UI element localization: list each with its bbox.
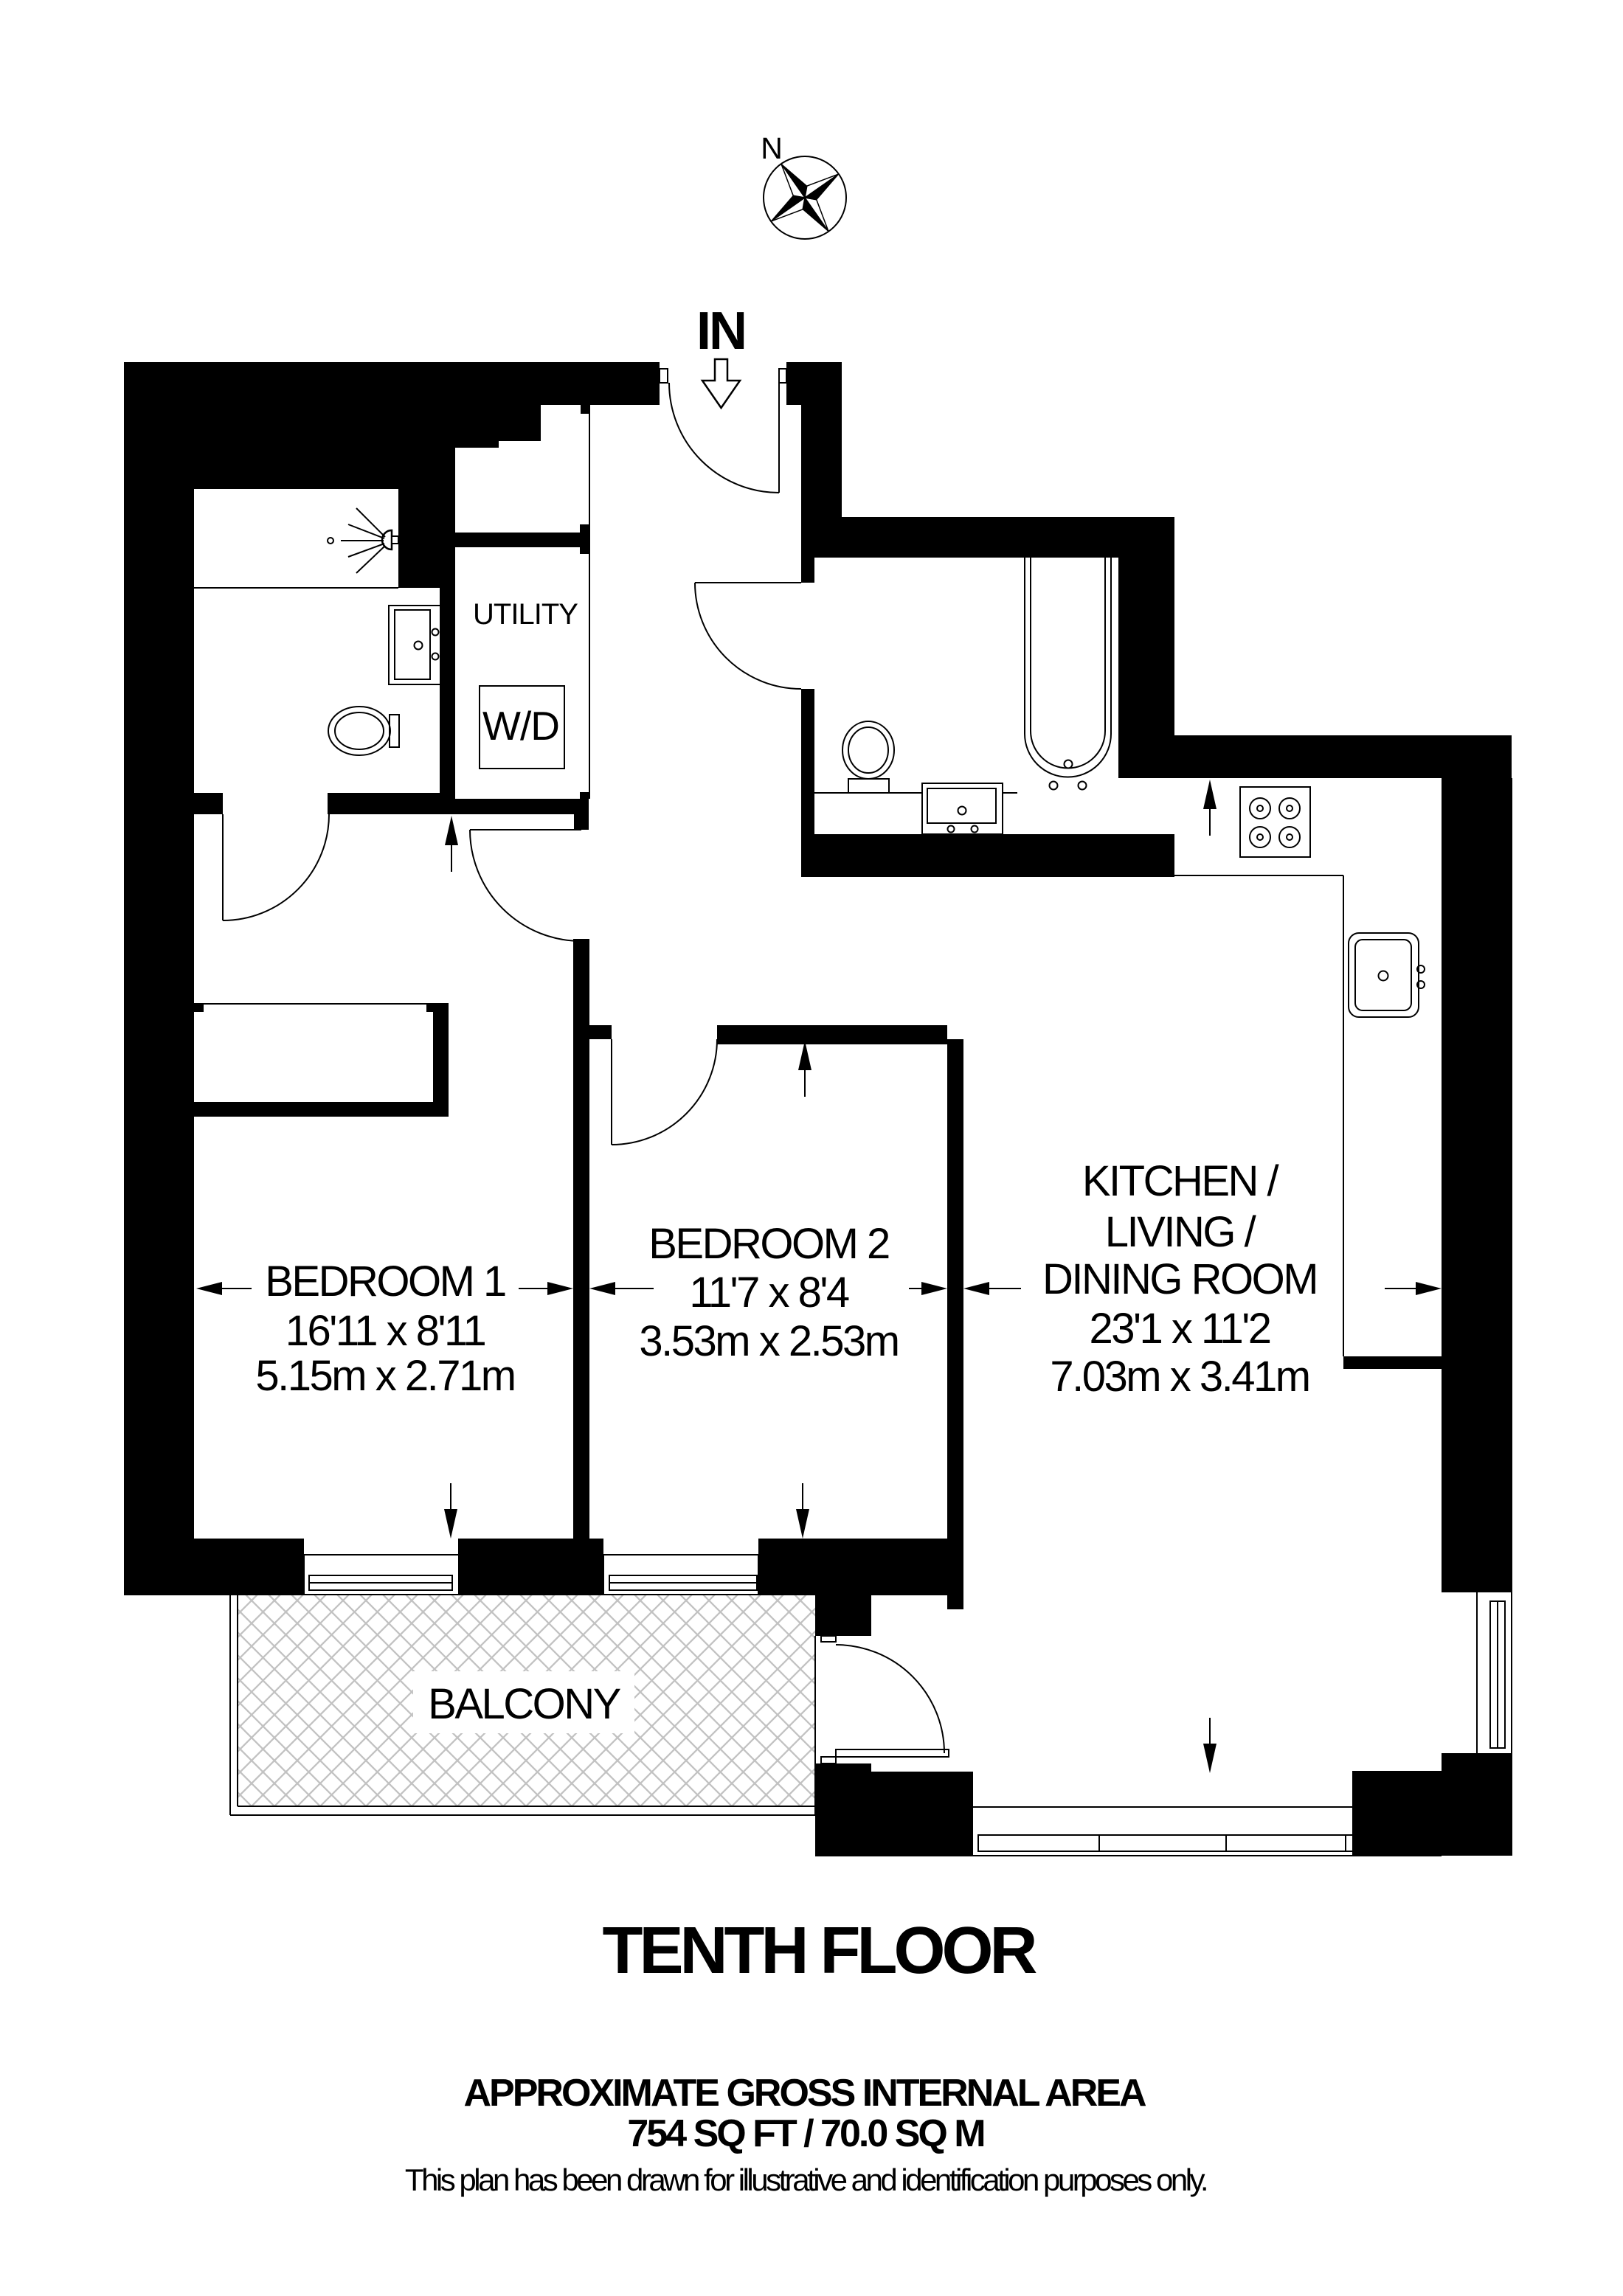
svg-text:KITCHEN /: KITCHEN / (1082, 1157, 1280, 1205)
svg-text:APPROXIMATE GROSS INTERNAL ARE: APPROXIMATE GROSS INTERNAL AREA (463, 2072, 1146, 2115)
svg-text:TENTH FLOOR: TENTH FLOOR (603, 1914, 1037, 1988)
svg-text:LIVING /: LIVING / (1105, 1208, 1257, 1256)
svg-text:BEDROOM 1: BEDROOM 1 (265, 1258, 505, 1305)
svg-text:754 SQ FT / 70.0 SQ M: 754 SQ FT / 70.0 SQ M (627, 2112, 983, 2155)
svg-text:7.03m x 3.41m: 7.03m x 3.41m (1050, 1353, 1309, 1401)
svg-text:11'7 x 8'4: 11'7 x 8'4 (689, 1269, 849, 1317)
svg-text:This plan has been drawn for i: This plan has been drawn for illustrativ… (405, 2163, 1206, 2197)
svg-text:UTILITY: UTILITY (473, 598, 578, 631)
svg-text:DINING ROOM: DINING ROOM (1042, 1255, 1317, 1303)
svg-text:IN: IN (696, 302, 745, 361)
svg-text:5.15m x 2.71m: 5.15m x 2.71m (255, 1352, 514, 1400)
svg-text:N: N (761, 131, 783, 165)
svg-text:BALCONY: BALCONY (428, 1680, 621, 1728)
svg-text:BEDROOM 2: BEDROOM 2 (648, 1220, 889, 1268)
svg-text:23'1 x 11'2: 23'1 x 11'2 (1089, 1305, 1270, 1353)
svg-text:16'11 x 8'11: 16'11 x 8'11 (286, 1307, 485, 1355)
svg-text:3.53m x 2.53m: 3.53m x 2.53m (639, 1317, 898, 1365)
svg-text:W/D: W/D (482, 703, 559, 749)
